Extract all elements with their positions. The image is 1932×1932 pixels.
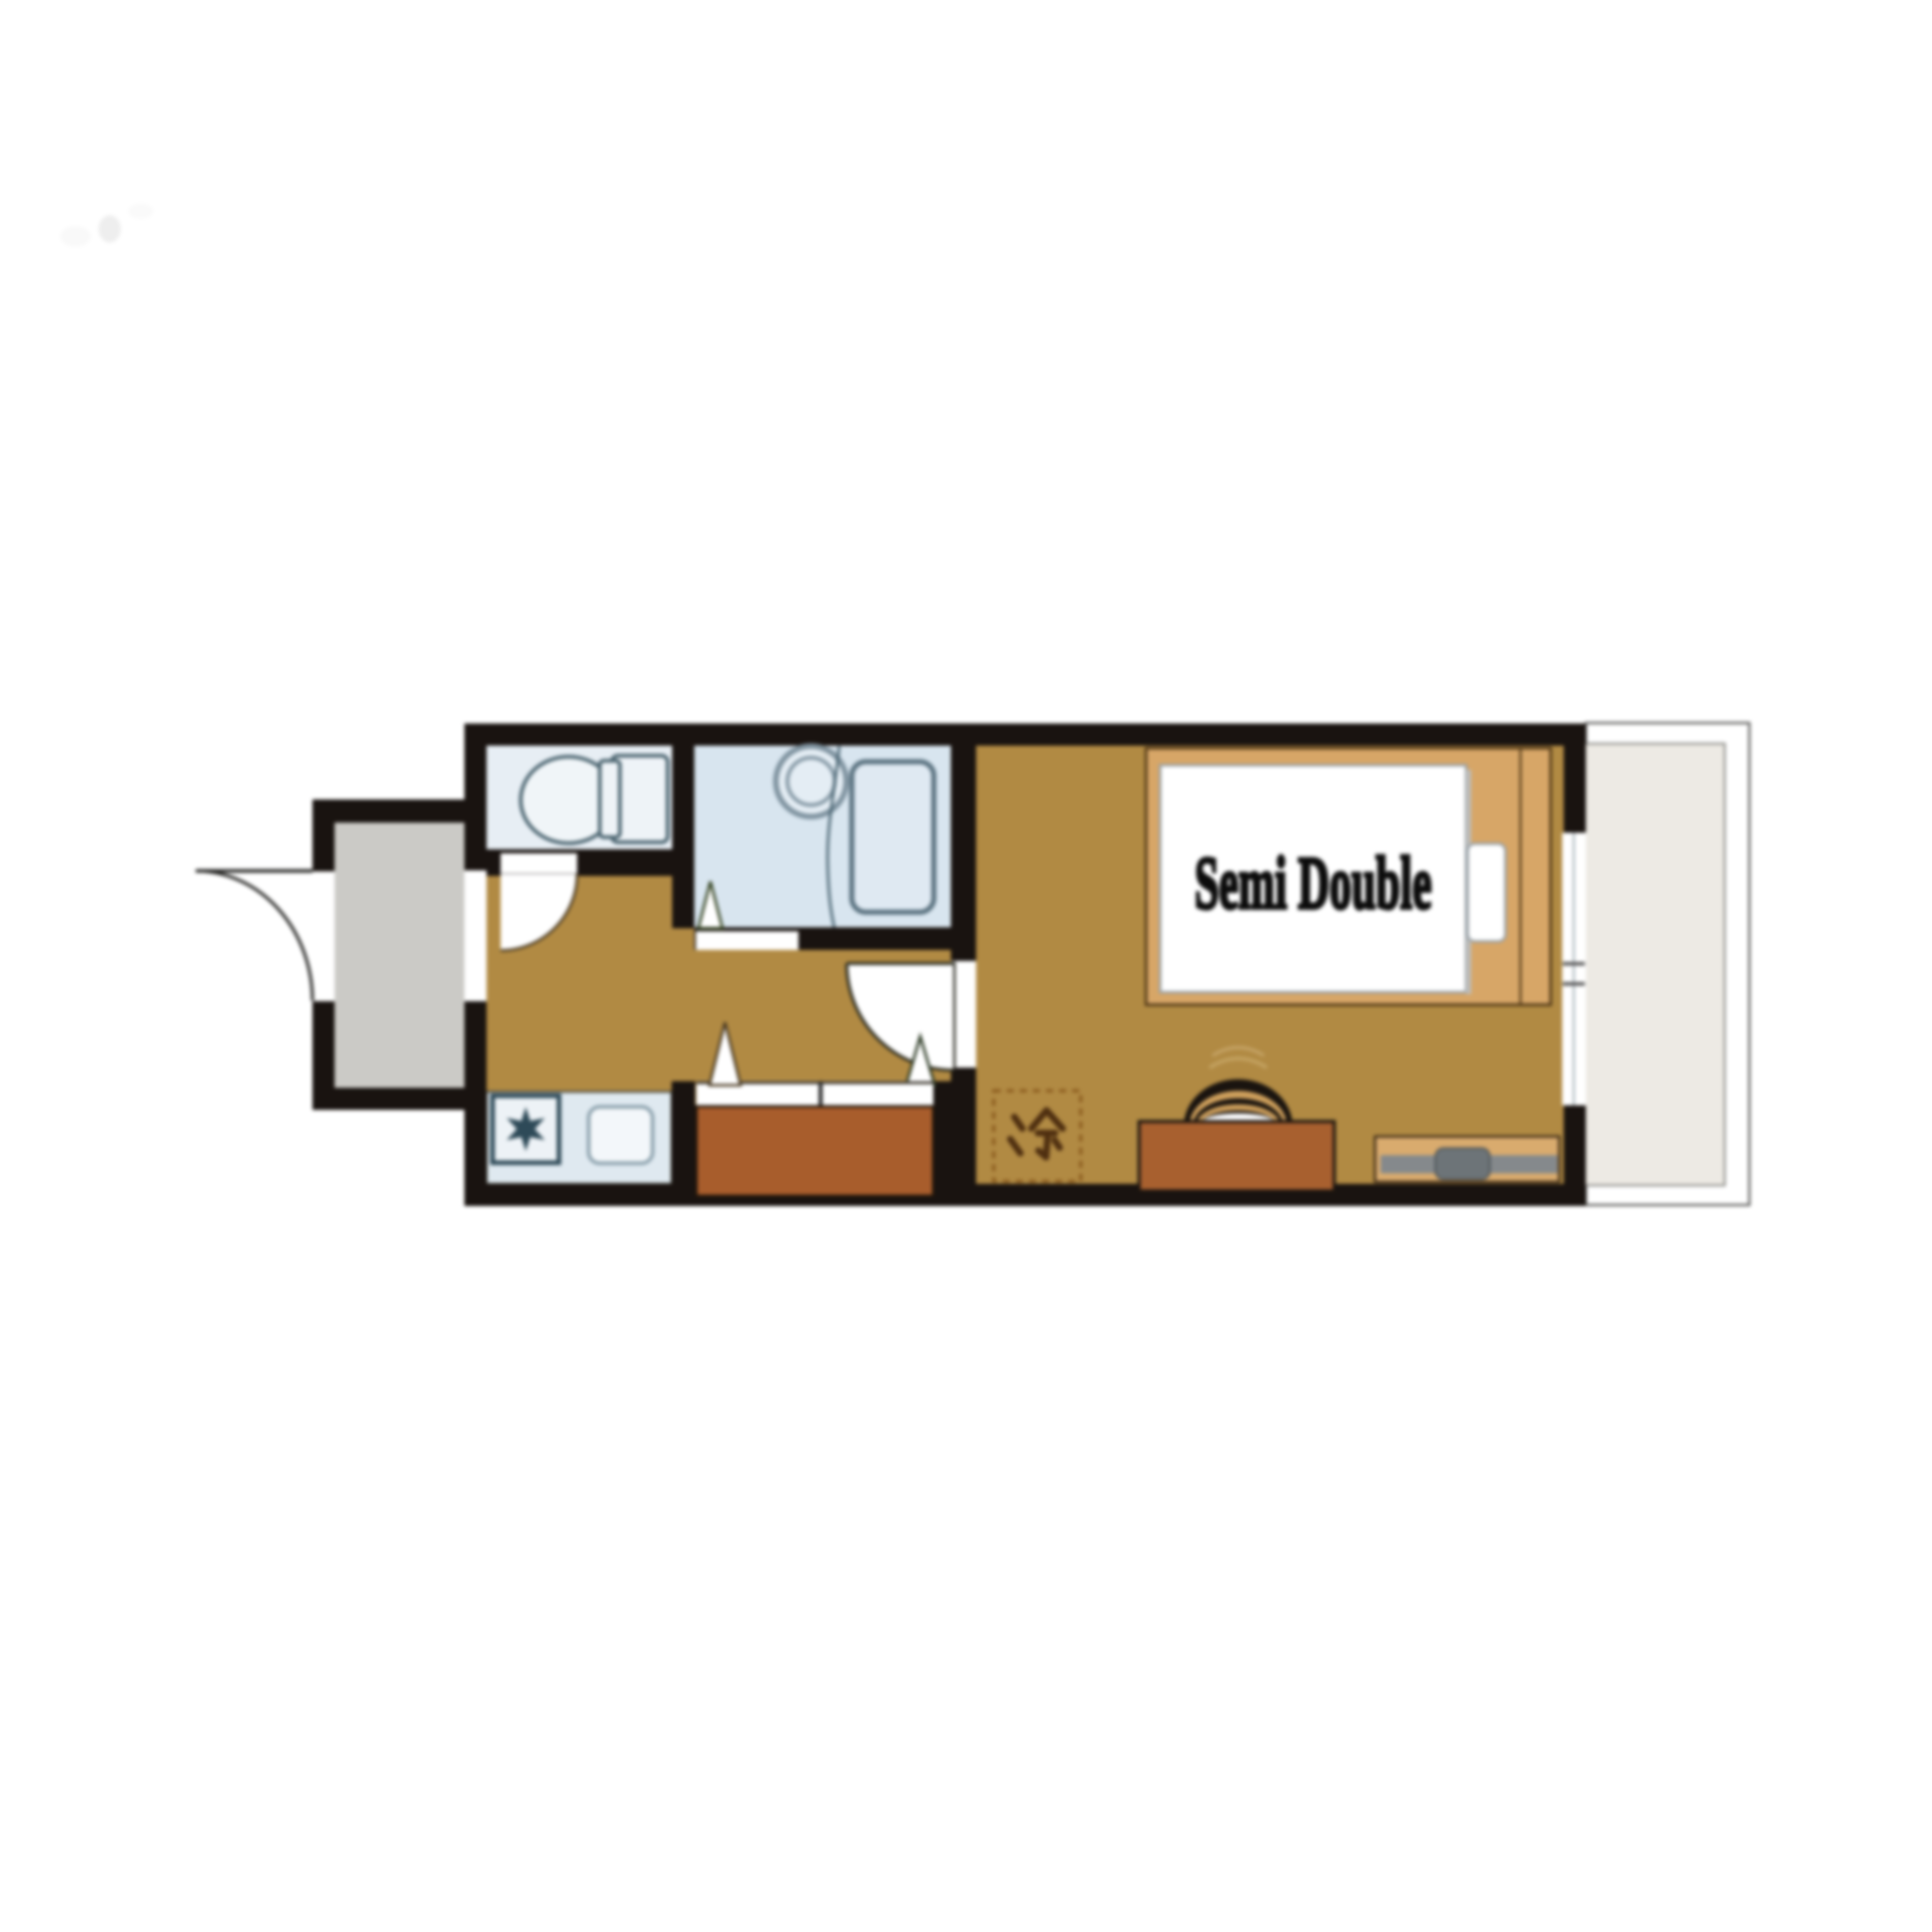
svg-text:Semi Double: Semi Double [1194,841,1431,925]
